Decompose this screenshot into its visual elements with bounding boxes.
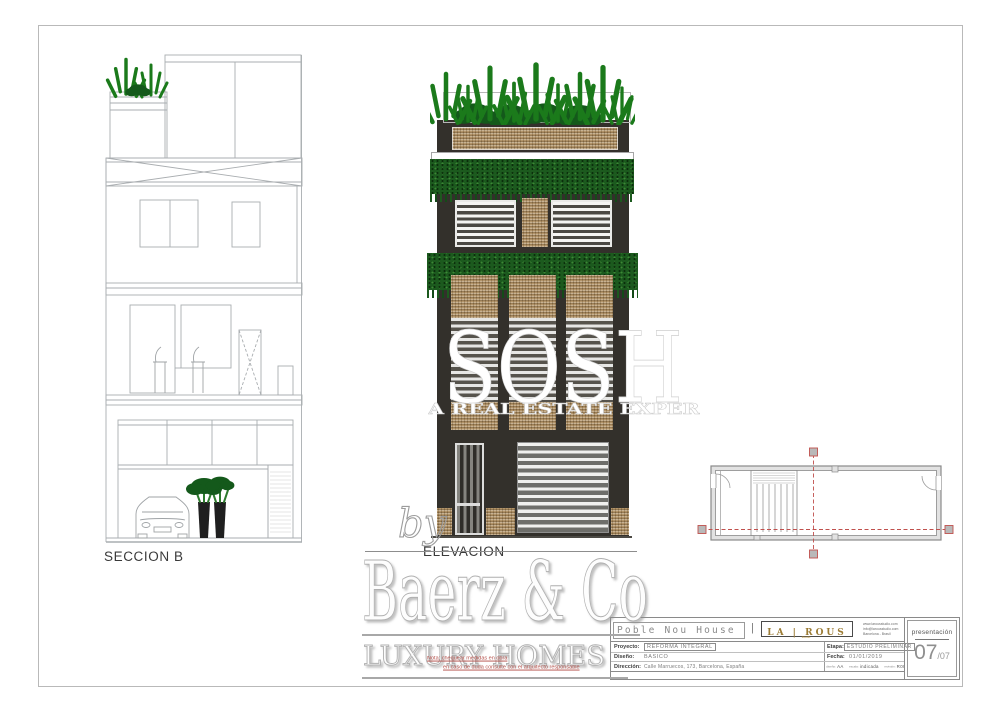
meta-label: escala: [849,665,859,668]
site-note-line-1: Nota: chequear medidas en obra [427,656,507,662]
svg-text:Baerz & Co: Baerz & Co [362,550,648,638]
title-block: Poble Nou House | LA | ROUS studio www.l… [610,617,960,680]
plan-walls [711,466,941,540]
page-number: 07 [914,641,937,664]
plan-stair [751,471,797,536]
svg-text:by: by [398,501,448,547]
meta-row-inner: diseño: AA escala: indicada revisión: R0… [824,664,904,669]
by-watermark: by [394,496,458,548]
watermark-rule-top [362,634,640,636]
meta-value: R00 [897,664,904,669]
field-value: ESTUDIO PRELIMINAR [844,643,915,651]
roof-plants [430,51,635,125]
parapet-brick-strip [452,127,618,150]
field-label: Fecha: [827,654,849,660]
overlay-tagline-clip: A REAL ESTATE EXPERIENCE [428,399,700,421]
potted-plants [186,477,234,538]
page-number-box: presentación 07/07 [907,620,957,677]
ground-line [431,536,632,538]
section-roof-plants [108,60,167,98]
section-label: SECCION B [104,549,184,564]
page-total: /07 [937,651,950,661]
field-value: 01/01/2019 [849,654,883,660]
page-box-rule [915,639,949,640]
field-label: Etapa: [827,644,844,650]
field-row-etapa: Etapa: ESTUDIO PRELIMINAR [824,642,904,653]
contact-city: Barcelona - Brasil [863,632,898,637]
larous-logo-sub: studio [781,636,831,639]
field-row-meta: diseño: AA escala: indicada revisión: R0… [824,662,904,671]
drawing-sheet: SOSH A REAL ESTATE EXPERIENCE by Baerz &… [0,0,1000,707]
field-value: BASICO [644,654,668,660]
hanging-plants-band-upper [430,159,634,194]
section-drawing [98,50,308,550]
meta-value: AA [837,664,844,669]
meta-label: diseño: [826,665,836,668]
presentation-label: presentación [908,621,956,636]
louver-window-right [551,200,612,247]
brick-pier-center [522,198,548,247]
meta-label: revisión: [884,665,895,668]
watermark-rule-bottom [362,677,628,679]
car-outline [136,497,189,538]
brick-patch [611,508,629,535]
plan-drawing [693,438,963,563]
larous-logo-box: LA | ROUS [761,621,853,637]
field-row-fecha: Fecha: 01/01/2019 [824,653,904,662]
section-linework [106,55,302,542]
contact-block: www.larousstudio.com info@larousstudio.c… [863,622,898,637]
fields-right-column: Etapa: ESTUDIO PRELIMINAR Fecha: 01/01/2… [824,642,904,671]
entry-door [455,443,484,535]
header-separator: | [751,622,754,634]
brand-watermark: Baerz & Co [358,550,658,638]
field-value: Calle Marruecos, 173, Barcelona, España [644,664,744,670]
louver-window-left [455,200,516,247]
meta-value: indicada [860,664,879,669]
overlay-tagline: A REAL ESTATE EXPERIENCE [428,401,700,418]
garage-door [517,442,609,533]
field-value: REFORMA INTEGRAL [644,643,716,651]
site-note-line-2: en caso de duda consulte con el arquitec… [443,665,580,671]
brick-patch [486,508,515,535]
fields-bottom-divider [611,671,904,672]
elevation-drawing [425,55,640,555]
page-number-row: 07/07 [908,641,956,665]
